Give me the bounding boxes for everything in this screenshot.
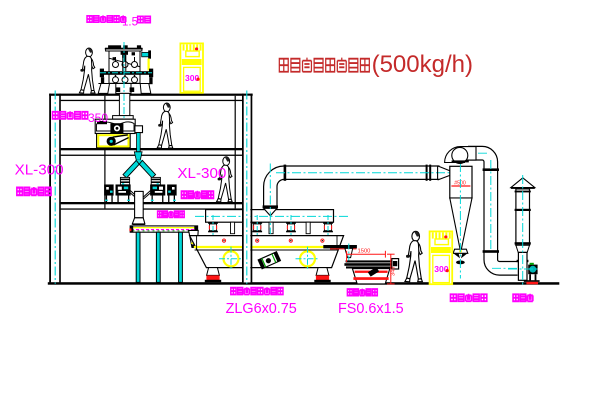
svg-text:XL-300: XL-300 [15,162,64,179]
svg-text:(500kg/h): (500kg/h) [372,51,473,78]
svg-text:1500: 1500 [358,249,371,255]
svg-text:ZLG6x0.75: ZLG6x0.75 [226,301,297,317]
svg-text:1.5: 1.5 [122,16,138,28]
svg-text:350: 350 [88,111,108,125]
svg-text:FS0.6x1.5: FS0.6x1.5 [338,301,404,317]
svg-text:345: 345 [390,267,396,276]
svg-text:XL-300: XL-300 [177,165,226,182]
